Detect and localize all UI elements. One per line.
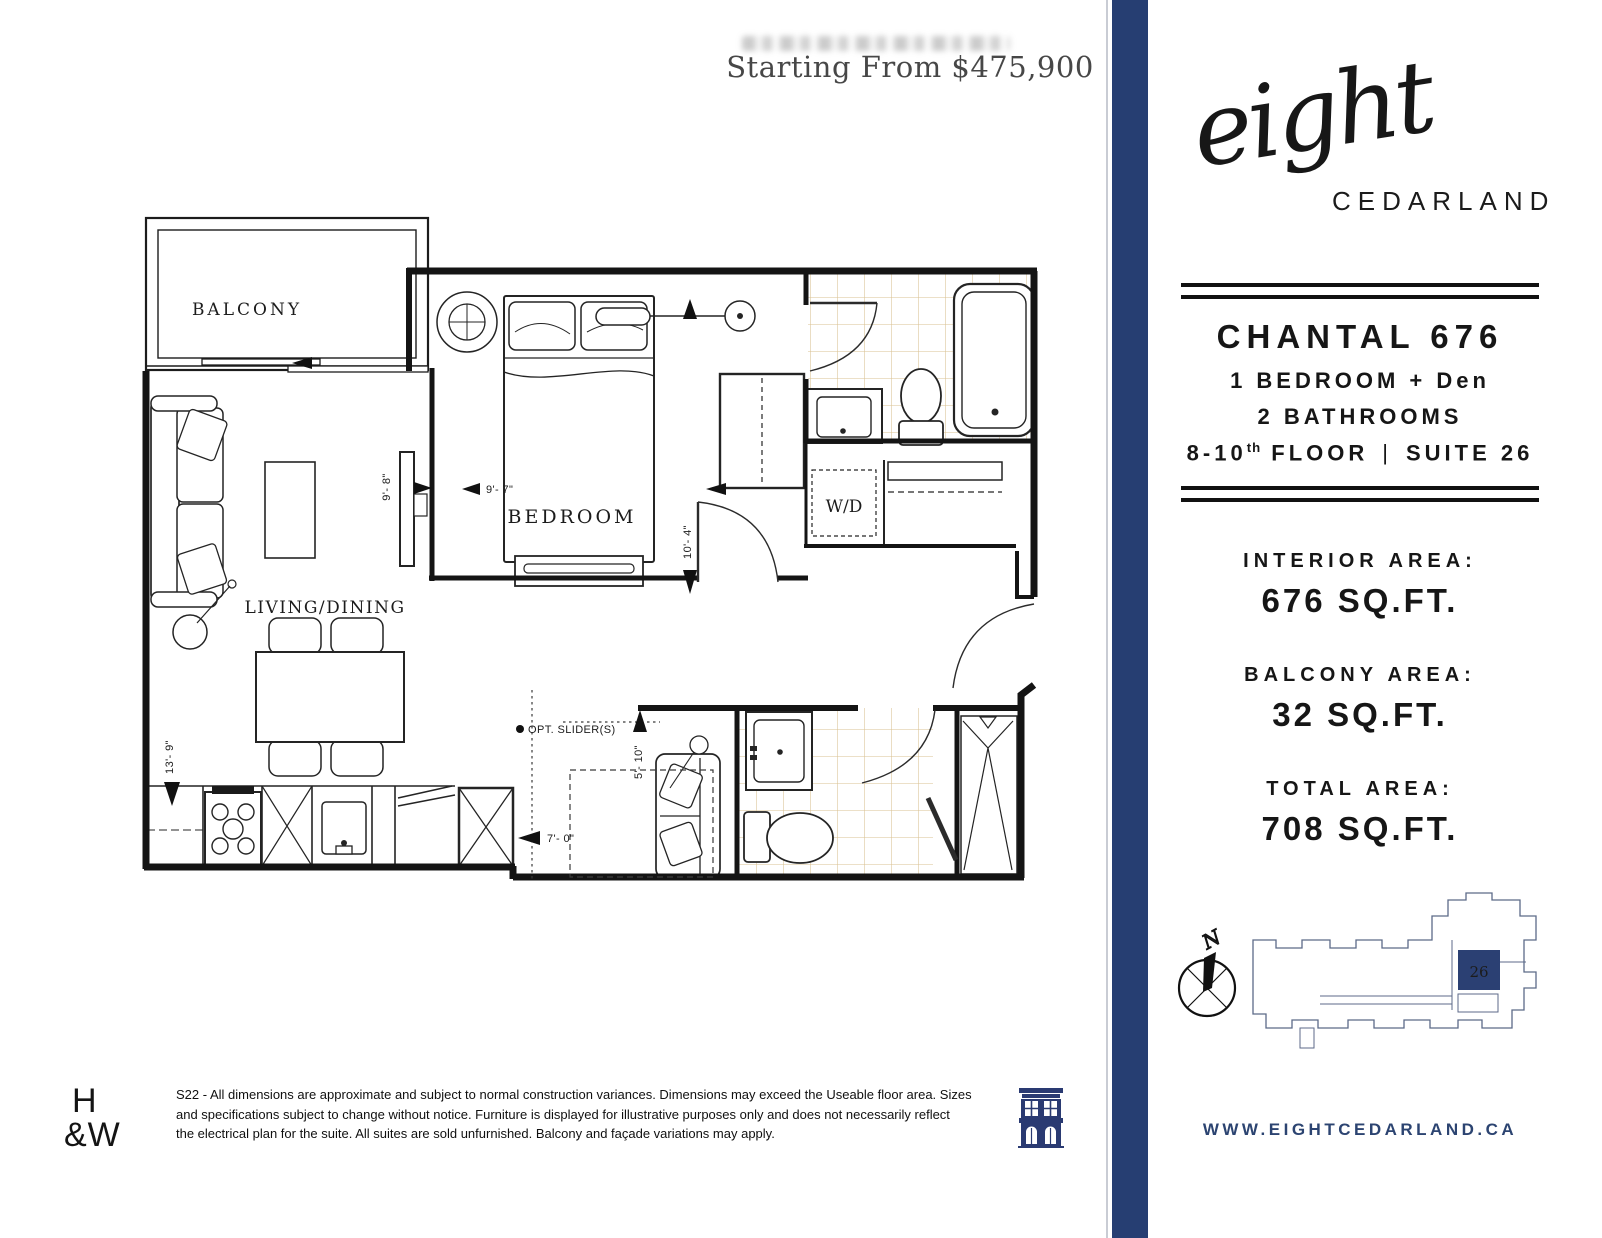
dim-bedroom-depth: 10'- 4" [682, 525, 694, 559]
website-url: WWW.EIGHTCEDARLAND.CA [1150, 1120, 1570, 1140]
rule-mid-1 [1181, 486, 1539, 490]
suite-number: SUITE 26 [1406, 440, 1533, 465]
stove [205, 786, 261, 866]
unit-bedrooms: 1 BEDROOM + Den [1168, 368, 1552, 394]
balcony-area-label: BALCONY AREA: [1168, 664, 1552, 687]
dim-den-depth: 5'- 10" [633, 745, 645, 779]
tv [400, 452, 427, 566]
unit-26-label: 26 [1469, 963, 1488, 981]
interior-area-label: INTERIOR AREA: [1168, 550, 1552, 573]
pipe-separator: | [1382, 440, 1392, 465]
brand-logo-caps: CEDARLAND [1332, 186, 1555, 217]
ceiling-light-icon [437, 292, 497, 352]
balcony-label: BALCONY [192, 300, 302, 320]
compass-icon: N [1179, 924, 1235, 1016]
highlighted-unit: 26 [1458, 950, 1500, 990]
wd-label: W/D [826, 497, 863, 517]
floor-ordinal: th [1247, 440, 1261, 455]
kitchen-sink [322, 802, 366, 854]
dim-tv-wall: 9'- 8" [381, 473, 393, 500]
kitchen-counter [145, 786, 455, 866]
interior-area-value: 676 SQ.FT. [1168, 582, 1552, 620]
disclaimer-line-3: the electrical plan for the suite. All s… [176, 1124, 986, 1144]
closet-x-box [459, 788, 513, 866]
hw-logo-line1: H [72, 1084, 121, 1118]
total-area-label: TOTAL AREA: [1168, 778, 1552, 801]
floorplan-drawing: BALCONY BEDROOM LIVING/DINING W/D 9'- 7"… [0, 0, 1100, 960]
floor-word: FLOOR [1261, 440, 1368, 465]
dim-living-depth: 13'- 9" [164, 740, 176, 774]
bathtub [954, 284, 1034, 436]
keyplan: N 26 [1150, 880, 1602, 1065]
sink-vanity-2 [746, 712, 812, 790]
bed [504, 296, 654, 586]
disclaimer-text: S22 - All dimensions are approximate and… [176, 1085, 986, 1144]
shower-stall [961, 716, 1017, 874]
flyer-page: Starting From $475,900 [0, 0, 1602, 1238]
disclaimer-line-2: and specifications subject to change wit… [176, 1105, 986, 1125]
toilet-2 [744, 812, 833, 863]
floor-range: 8-10 [1187, 440, 1247, 465]
divider-hairline [1106, 0, 1108, 1238]
rule-top-2 [1181, 295, 1539, 299]
console-table [265, 462, 315, 558]
hw-logo: H &W [72, 1084, 121, 1152]
unit-floor-suite: 8-10th FLOOR|SUITE 26 [1168, 440, 1552, 466]
opt-slider-label: OPT. SLIDER(S) [528, 724, 616, 736]
balcony-area-value: 32 SQ.FT. [1168, 696, 1552, 734]
rule-mid-2 [1181, 498, 1539, 502]
compass-n-label: N [1197, 924, 1226, 955]
hall-closet [720, 374, 804, 488]
unit-name: CHANTAL 676 [1168, 318, 1552, 356]
living-label: LIVING/DINING [244, 598, 405, 618]
bedroom-label: BEDROOM [508, 506, 637, 528]
den-sofa [656, 736, 720, 878]
toilet-1 [899, 369, 943, 445]
hw-logo-line2: &W [64, 1118, 121, 1152]
disclaimer-line-1: S22 - All dimensions are approximate and… [176, 1085, 986, 1105]
sofa [151, 396, 228, 607]
dining-set [256, 618, 404, 776]
balcony-walls [146, 218, 428, 372]
rule-top-1 [1181, 283, 1539, 287]
brand-logo-script: eight [1183, 28, 1460, 197]
unit-bathrooms: 2 BATHROOMS [1168, 404, 1552, 430]
divider-bar [1112, 0, 1148, 1238]
total-area-value: 708 SQ.FT. [1168, 810, 1552, 848]
building-icon [1018, 1086, 1064, 1148]
sink-vanity-1 [806, 389, 882, 443]
dim-den-width: 7'- 0" [547, 833, 574, 845]
dim-bedroom-width: 9'- 7" [486, 484, 513, 496]
